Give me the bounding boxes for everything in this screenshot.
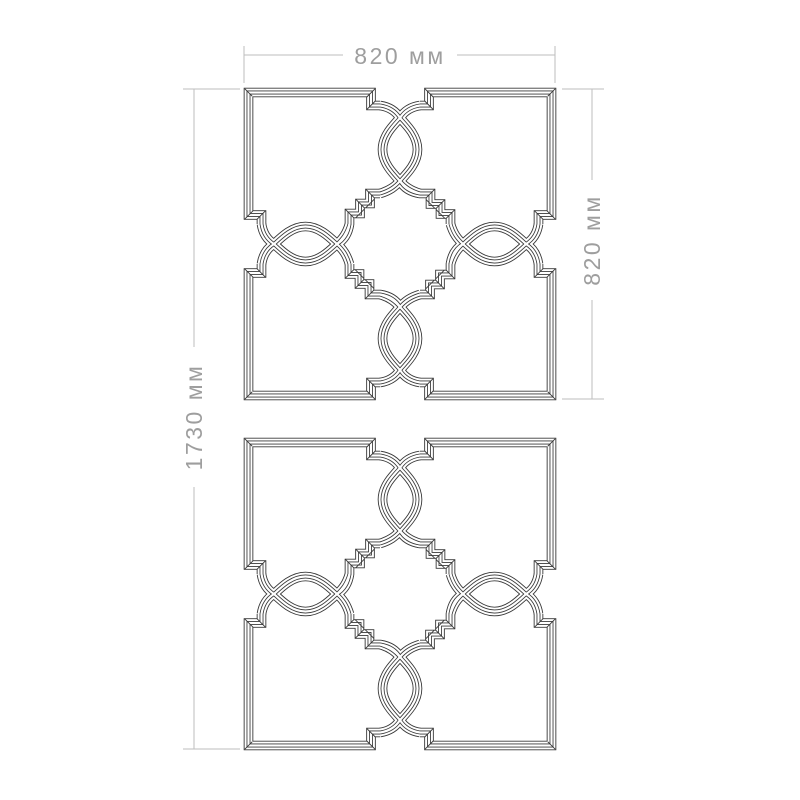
- ornament-panel-bottom: [244, 438, 555, 749]
- dimension-right-height: 820 мм: [562, 89, 605, 399]
- dimension-label-right-height: 820 мм: [579, 194, 605, 285]
- drawing-page: 820 мм 1730 мм 820 мм: [0, 0, 800, 800]
- technical-drawing: 820 мм 1730 мм 820 мм: [0, 0, 800, 800]
- ornament-panel-top: [244, 88, 555, 399]
- dimension-label-top-width: 820 мм: [354, 43, 445, 69]
- dimension-top-width: 820 мм: [244, 43, 555, 83]
- dimension-label-left-total-height: 1730 мм: [181, 364, 207, 471]
- dimension-left-total-height: 1730 мм: [181, 89, 240, 749]
